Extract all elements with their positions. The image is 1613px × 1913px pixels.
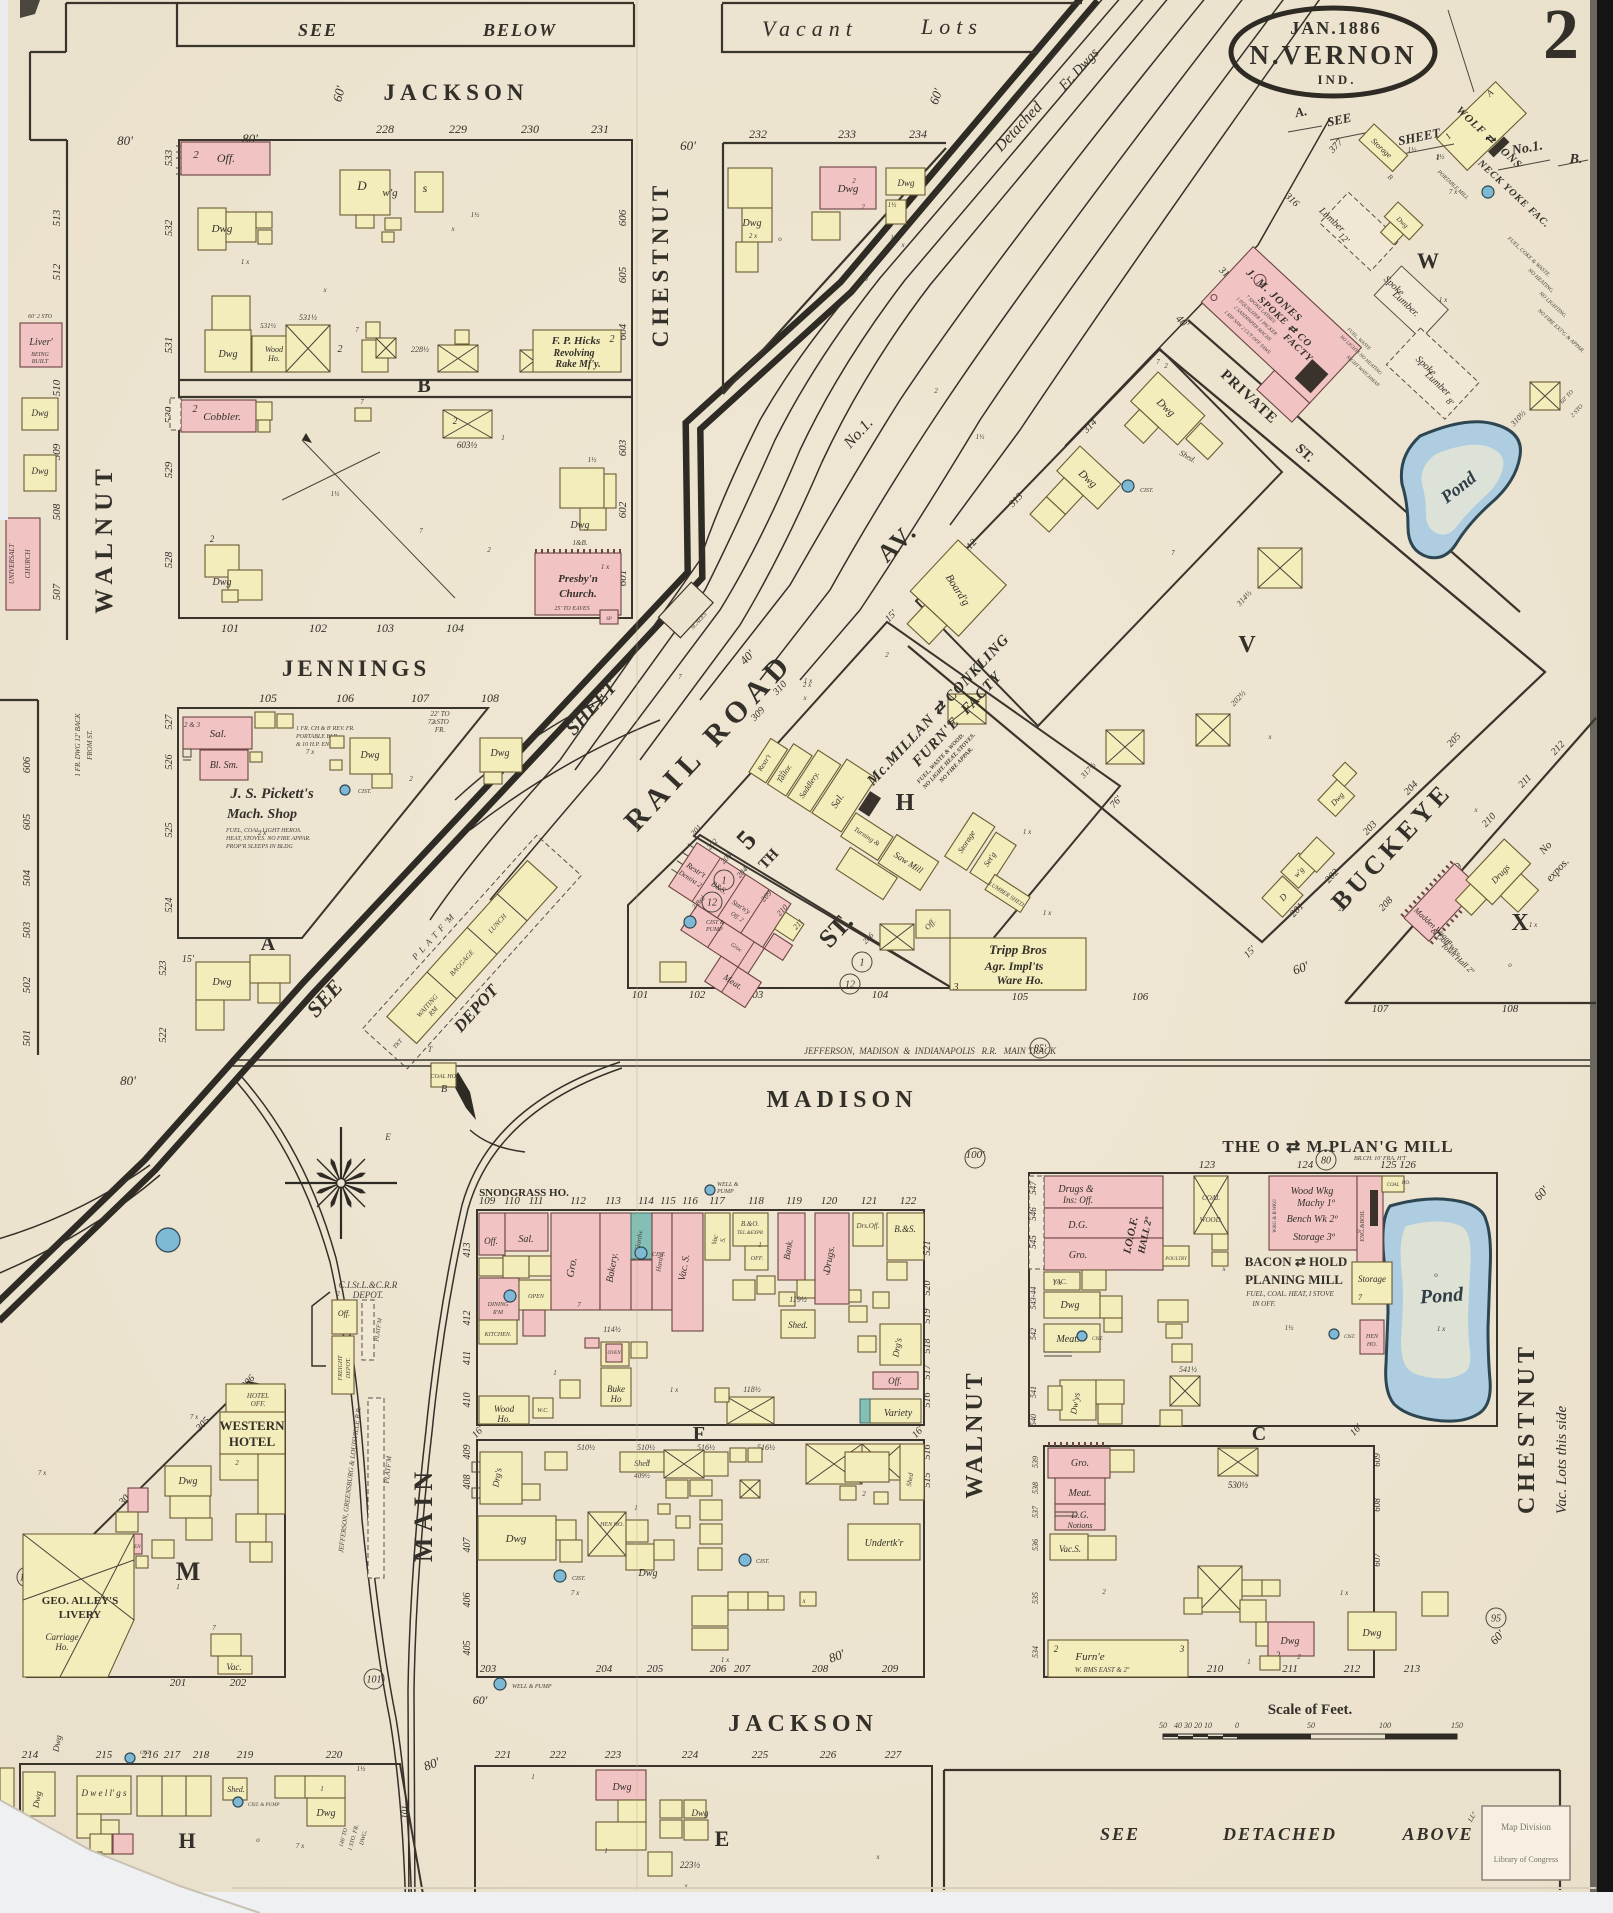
svg-text:o: o	[1508, 961, 1512, 969]
svg-text:536: 536	[1031, 1539, 1040, 1551]
svg-text:1: 1	[531, 1773, 535, 1781]
svg-text:1 x: 1 x	[1439, 296, 1448, 304]
svg-text:109: 109	[479, 1195, 496, 1207]
svg-text:Dwg: Dwg	[690, 1808, 709, 1818]
svg-text:410: 410	[462, 1393, 473, 1408]
svg-text:545: 545	[1028, 1235, 1038, 1249]
svg-text:118½: 118½	[743, 1385, 760, 1394]
svg-text:1: 1	[722, 876, 727, 887]
svg-text:Meat.: Meat.	[1055, 1334, 1079, 1345]
svg-text:OFF.: OFF.	[751, 1256, 763, 1262]
svg-text:FUEL, COAL. HEAT, I STOVE: FUEL, COAL. HEAT, I STOVE	[1245, 1290, 1334, 1298]
svg-text:Buke: Buke	[607, 1384, 625, 1394]
svg-text:1 x: 1 x	[1437, 1325, 1446, 1333]
svg-text:2: 2	[778, 770, 782, 778]
svg-text:WELL & PUMP: WELL & PUMP	[512, 1684, 552, 1690]
svg-text:501: 501	[21, 1030, 33, 1047]
svg-text:525: 525	[164, 823, 175, 838]
svg-text:BЕLOW: BЕLOW	[482, 20, 557, 40]
svg-text:1½: 1½	[471, 211, 481, 219]
svg-text:JEFFERSON, MADISON & INDIAN: JEFFERSON, MADISON & INDIANAPOLIS R.R. M…	[804, 1046, 1057, 1056]
svg-text:80: 80	[1321, 1156, 1331, 1167]
svg-text:Liver': Liver'	[28, 337, 53, 348]
svg-text:232: 232	[749, 127, 767, 141]
svg-text:D w e l l' g s: D w e l l' g s	[81, 1788, 127, 1798]
svg-text:521: 521	[922, 1241, 933, 1256]
svg-text:UNIVERSALT: UNIVERSALT	[8, 543, 16, 584]
svg-text:1 x: 1 x	[1023, 828, 1032, 836]
svg-text:215: 215	[96, 1749, 113, 1761]
svg-text:2 x: 2 x	[258, 829, 267, 837]
svg-text:101: 101	[367, 1675, 382, 1686]
svg-text:CIST.: CIST.	[1092, 1337, 1104, 1342]
svg-text:Off.: Off.	[888, 1376, 902, 1386]
svg-text:606: 606	[617, 209, 629, 226]
svg-text:115: 115	[660, 1195, 676, 1207]
svg-text:121: 121	[861, 1195, 878, 1207]
svg-text:517: 517	[922, 1364, 933, 1380]
svg-text:529: 529	[163, 461, 175, 478]
svg-text:101: 101	[400, 1805, 410, 1819]
svg-text:15': 15'	[182, 954, 195, 965]
svg-text:513: 513	[51, 209, 63, 226]
svg-text:502: 502	[21, 976, 33, 993]
svg-text:Undertk'r: Undertk'r	[865, 1538, 904, 1549]
svg-text:TEL.&EXPR: TEL.&EXPR	[737, 1231, 763, 1236]
svg-text:1: 1	[890, 234, 894, 242]
svg-text:Mach. Shop: Mach. Shop	[226, 807, 297, 822]
svg-text:Library of Congress: Library of Congress	[1494, 1855, 1558, 1864]
svg-text:1 x: 1 x	[1043, 909, 1052, 917]
svg-text:W. RMS EAST & 2º: W. RMS EAST & 2º	[1075, 1666, 1130, 1674]
svg-text:Vac.: Vac.	[226, 1662, 241, 1672]
svg-text:2: 2	[193, 149, 199, 161]
svg-text:w'g: w'g	[382, 187, 398, 199]
svg-text:209: 209	[882, 1663, 899, 1675]
svg-text:W: W	[1417, 248, 1439, 273]
svg-text:PLANING MILL: PLANING MILL	[1245, 1272, 1343, 1287]
svg-text:12: 12	[845, 980, 855, 991]
svg-text:BUILT: BUILT	[32, 359, 49, 365]
svg-text:205: 205	[647, 1663, 664, 1675]
svg-text:2: 2	[1164, 362, 1168, 370]
svg-text:Ware Ho.: Ware Ho.	[996, 973, 1043, 987]
svg-text:W.C.: W.C.	[537, 1408, 548, 1414]
svg-text:F: F	[693, 1423, 705, 1445]
svg-text:Dwg: Dwg	[178, 1476, 198, 1487]
svg-text:224: 224	[682, 1749, 699, 1761]
svg-text:214: 214	[22, 1749, 39, 1761]
svg-text:CIST.: CIST.	[1344, 1335, 1356, 1340]
svg-text:221: 221	[495, 1749, 512, 1761]
svg-text:Drugs &: Drugs &	[1057, 1184, 1094, 1195]
svg-text:105: 105	[259, 691, 277, 705]
svg-text:1 x: 1 x	[721, 1656, 730, 1664]
svg-text:Dwg: Dwg	[30, 408, 49, 418]
svg-text:Map Division: Map Division	[1501, 1822, 1551, 1832]
svg-text:527: 527	[164, 714, 175, 730]
svg-text:218: 218	[193, 1749, 210, 1761]
svg-text:540: 540	[1029, 1414, 1038, 1426]
svg-text:102: 102	[309, 621, 327, 635]
svg-text:40 30 20 10: 40 30 20 10	[1174, 1721, 1212, 1730]
svg-text:1½: 1½	[1408, 146, 1418, 154]
svg-text:HO.: HO.	[1366, 1342, 1377, 1348]
svg-text:Dwg: Dwg	[1280, 1636, 1300, 1647]
svg-text:104: 104	[872, 989, 889, 1001]
svg-text:518: 518	[922, 1339, 933, 1354]
svg-text:412: 412	[462, 1311, 473, 1326]
svg-text:108: 108	[1502, 1003, 1519, 1015]
svg-text:Dwg: Dwg	[212, 977, 232, 988]
svg-text:WALNUT: WALNUT	[91, 462, 118, 614]
svg-text:2: 2	[1338, 905, 1342, 913]
svg-text:602: 602	[617, 501, 629, 518]
svg-text:Drs.Off.: Drs.Off.	[856, 1222, 880, 1230]
svg-text:526: 526	[164, 755, 175, 770]
svg-text:532: 532	[163, 219, 175, 236]
svg-text:Storage: Storage	[1358, 1274, 1386, 1284]
svg-text:207: 207	[734, 1663, 751, 1675]
svg-text:E: E	[715, 1826, 730, 1851]
svg-text:M: M	[176, 1557, 201, 1586]
svg-text:106: 106	[1132, 991, 1149, 1003]
svg-text:Rake Mf'y.: Rake Mf'y.	[554, 359, 600, 370]
svg-text:2: 2	[1543, 0, 1579, 74]
svg-text:Dwg: Dwg	[638, 1568, 658, 1579]
svg-text:7: 7	[678, 673, 682, 681]
svg-text:60': 60'	[680, 138, 696, 153]
svg-text:114½: 114½	[603, 1325, 620, 1334]
svg-text:H: H	[896, 790, 915, 816]
svg-text:535: 535	[1031, 1592, 1040, 1604]
svg-text:2: 2	[862, 1490, 866, 1498]
svg-text:546: 546	[1028, 1207, 1038, 1221]
svg-text:Meat.: Meat.	[1067, 1488, 1091, 1499]
svg-text:Dwg: Dwg	[896, 178, 915, 188]
svg-text:Bench Wk 2º: Bench Wk 2º	[1287, 1214, 1339, 1225]
svg-text:516: 516	[922, 1393, 933, 1408]
svg-text:Storage 3º: Storage 3º	[1293, 1232, 1336, 1243]
svg-text:531½: 531½	[260, 322, 277, 330]
svg-text:Dwg: Dwg	[1362, 1628, 1382, 1639]
svg-text:o: o	[864, 275, 868, 283]
svg-text:2 x: 2 x	[749, 232, 758, 240]
svg-text:537: 537	[1031, 1505, 1040, 1518]
svg-text:7 x: 7 x	[428, 718, 437, 726]
svg-text:504: 504	[21, 869, 33, 886]
svg-text:JACKSON: JACKSON	[728, 1711, 878, 1737]
svg-text:229: 229	[449, 122, 467, 136]
svg-text:WOOD.: WOOD.	[1200, 1216, 1223, 1224]
svg-text:219: 219	[237, 1749, 254, 1761]
svg-text:H: H	[178, 1828, 195, 1853]
svg-text:Dwg: Dwg	[212, 577, 232, 588]
svg-text:2: 2	[336, 1290, 340, 1298]
svg-text:605: 605	[21, 813, 33, 830]
svg-text:POULTRY: POULTRY	[1164, 1257, 1188, 1262]
svg-text:B.&S.: B.&S.	[894, 1224, 916, 1234]
svg-text:230: 230	[521, 122, 539, 136]
svg-text:CHURCH: CHURCH	[24, 549, 32, 579]
svg-text:2: 2	[193, 404, 198, 415]
svg-text:150: 150	[1451, 1721, 1463, 1730]
svg-text:X: X	[1511, 910, 1529, 936]
svg-text:1½: 1½	[1436, 153, 1446, 161]
svg-text:114: 114	[638, 1195, 654, 1207]
svg-text:202: 202	[230, 1677, 247, 1689]
svg-text:Revolving: Revolving	[552, 348, 594, 359]
svg-text:Dwg: Dwg	[1060, 1300, 1080, 1311]
svg-text:Dwg: Dwg	[570, 520, 590, 531]
svg-text:538: 538	[1031, 1482, 1040, 1494]
svg-text:o: o	[1434, 1271, 1438, 1279]
svg-text:226: 226	[820, 1749, 837, 1761]
svg-text:Dwg: Dwg	[211, 223, 233, 235]
svg-text:HO.: HO.	[1401, 1181, 1410, 1186]
svg-text:406: 406	[462, 1593, 473, 1608]
svg-text:DЕTACHЕD: DЕTACHЕD	[1222, 1824, 1337, 1844]
svg-text:Wood: Wood	[494, 1404, 515, 1414]
svg-text:2: 2	[1102, 1588, 1106, 1596]
svg-text:Dwg: Dwg	[360, 750, 380, 761]
svg-text:Carriage: Carriage	[45, 1632, 78, 1642]
svg-text:MAIN: MAIN	[409, 1466, 438, 1562]
svg-text:Off.: Off.	[338, 1309, 350, 1318]
svg-text:1: 1	[176, 1583, 180, 1591]
svg-text:1½: 1½	[588, 456, 598, 464]
svg-text:BR.CH. 10' FRA. H'T: BR.CH. 10' FRA. H'T	[1354, 1156, 1407, 1162]
svg-text:Dwg: Dwg	[490, 748, 510, 759]
svg-text:228½: 228½	[411, 345, 429, 354]
svg-text:Ins: Off.: Ins: Off.	[1062, 1195, 1093, 1205]
svg-text:528: 528	[163, 551, 175, 568]
svg-text:THЕ O ⇄ M.PLAN'G MILL: THЕ O ⇄ M.PLAN'G MILL	[1222, 1137, 1453, 1156]
svg-text:OFF.: OFF.	[251, 1400, 266, 1408]
svg-text:234: 234	[909, 127, 927, 141]
svg-text:405: 405	[462, 1641, 473, 1656]
svg-text:123: 123	[1199, 1159, 1216, 1171]
svg-text:530½: 530½	[1228, 1480, 1249, 1490]
svg-text:o: o	[256, 1836, 260, 1844]
svg-text:7: 7	[1171, 549, 1175, 557]
svg-text:606: 606	[21, 756, 33, 773]
svg-text:CIST &: CIST &	[706, 920, 725, 926]
svg-text:107: 107	[1372, 1003, 1389, 1015]
svg-text:541½: 541½	[1179, 1365, 1197, 1374]
svg-text:J. S. Pickett's: J. S. Pickett's	[229, 786, 313, 802]
svg-text:HOTEL: HOTEL	[246, 1392, 269, 1400]
svg-text:B.&O.: B.&O.	[741, 1220, 760, 1228]
svg-text:7: 7	[360, 398, 364, 406]
svg-text:117: 117	[709, 1195, 725, 1207]
svg-text:Ho.: Ho.	[496, 1414, 510, 1424]
svg-text:Variety: Variety	[884, 1408, 913, 1419]
svg-text:Dwg: Dwg	[505, 1533, 527, 1545]
svg-text:JAN.1886: JAN.1886	[1290, 18, 1382, 38]
svg-text:7 x: 7 x	[571, 1589, 580, 1597]
svg-text:D: D	[356, 178, 367, 193]
svg-text:206: 206	[710, 1663, 727, 1675]
svg-text:Agr. Impl'ts: Agr. Impl'ts	[984, 959, 1044, 973]
svg-text:100: 100	[1379, 1721, 1391, 1730]
svg-text:Notions: Notions	[1067, 1521, 1093, 1530]
svg-text:7: 7	[419, 527, 423, 535]
svg-text:101: 101	[221, 621, 239, 635]
svg-text:1 x: 1 x	[601, 563, 610, 571]
svg-text:JACKSON: JACKSON	[384, 80, 529, 105]
svg-text:1 FR. CH & 8' REV. FR.: 1 FR. CH & 8' REV. FR.	[296, 726, 355, 732]
svg-text:225: 225	[752, 1749, 769, 1761]
svg-text:Shed.: Shed.	[788, 1320, 808, 1330]
svg-text:1½: 1½	[331, 490, 341, 498]
svg-text:507: 507	[51, 583, 63, 600]
svg-text:227: 227	[885, 1749, 902, 1761]
svg-text:B: B	[441, 1084, 447, 1095]
svg-text:118: 118	[748, 1195, 764, 1207]
svg-text:Tripp Bros: Tripp Bros	[989, 942, 1047, 957]
svg-text:508: 508	[51, 503, 63, 520]
svg-text:85': 85'	[1034, 1044, 1047, 1055]
svg-text:V: V	[1238, 632, 1256, 658]
svg-text:2: 2	[826, 1269, 830, 1277]
svg-text:1½: 1½	[976, 433, 986, 441]
svg-text:OVEN: OVEN	[607, 1351, 621, 1356]
svg-text:60' 2 STO: 60' 2 STO	[28, 314, 53, 320]
svg-text:7 x: 7 x	[296, 1842, 305, 1850]
svg-text:201: 201	[170, 1677, 187, 1689]
svg-text:SP: SP	[606, 617, 612, 622]
svg-text:541: 541	[1029, 1386, 1038, 1398]
svg-text:FR.: FR.	[434, 726, 446, 734]
svg-text:512: 512	[51, 263, 63, 280]
svg-text:CIST.: CIST.	[756, 1559, 769, 1565]
svg-text:50: 50	[1159, 1721, 1167, 1730]
svg-text:CIST.: CIST.	[1140, 488, 1153, 494]
svg-text:Presby'n: Presby'n	[558, 573, 598, 585]
svg-text:119: 119	[786, 1195, 802, 1207]
svg-text:539: 539	[1031, 1456, 1040, 1468]
svg-text:1 x: 1 x	[1340, 1589, 1349, 1597]
svg-text:DEPOT.: DEPOT.	[346, 1358, 352, 1379]
svg-text:80': 80'	[120, 1073, 136, 1088]
svg-text:217: 217	[164, 1749, 181, 1761]
svg-text:413: 413	[462, 1243, 473, 1258]
svg-text:510: 510	[51, 379, 63, 396]
svg-text:D.G.: D.G.	[1067, 1220, 1087, 1231]
svg-text:22' TO: 22' TO	[430, 710, 449, 718]
svg-text:547: 547	[1028, 1181, 1038, 1195]
svg-text:408: 408	[462, 1475, 473, 1490]
svg-text:2: 2	[487, 546, 491, 554]
svg-text:Scale of Feet.: Scale of Feet.	[1268, 1702, 1353, 1718]
svg-text:116: 116	[682, 1195, 698, 1207]
svg-text:122: 122	[900, 1195, 917, 1207]
svg-text:PROP'R SLEEPS IN BLDG: PROP'R SLEEPS IN BLDG	[225, 844, 293, 850]
svg-text:1: 1	[860, 958, 865, 969]
svg-text:2: 2	[861, 203, 865, 211]
svg-text:Machy 1º: Machy 1º	[1296, 1198, 1336, 1209]
svg-text:210: 210	[1207, 1663, 1224, 1675]
svg-text:CIST.: CIST.	[652, 1252, 665, 1258]
svg-text:7: 7	[1156, 358, 1160, 366]
svg-text:IN OFF.: IN OFF.	[1251, 1300, 1275, 1308]
svg-text:2: 2	[210, 534, 215, 544]
svg-text:2: 2	[934, 387, 938, 395]
svg-text:Ho: Ho	[610, 1394, 622, 1404]
svg-text:7 x: 7 x	[38, 1469, 47, 1477]
svg-text:111: 111	[529, 1195, 544, 1207]
svg-text:212: 212	[1344, 1663, 1361, 1675]
svg-text:7 x: 7 x	[306, 748, 315, 756]
svg-text:KITCHEN.: KITCHEN.	[484, 1332, 512, 1338]
svg-text:1 x: 1 x	[241, 258, 250, 266]
svg-text:CIST.: CIST.	[572, 1576, 585, 1582]
svg-text:108: 108	[481, 691, 499, 705]
svg-text:220: 220	[326, 1749, 343, 1761]
svg-text:223½: 223½	[680, 1860, 701, 1870]
svg-text:203: 203	[480, 1663, 497, 1675]
svg-text:124: 124	[1297, 1159, 1314, 1171]
svg-text:407: 407	[462, 1537, 473, 1553]
svg-text:3: 3	[1179, 1644, 1185, 1654]
svg-text:222: 222	[550, 1749, 567, 1761]
svg-text:HEN HO.: HEN HO.	[599, 1522, 624, 1528]
svg-text:1&B.: 1&B.	[573, 539, 588, 547]
svg-text:BEING: BEING	[31, 352, 49, 358]
svg-text:Lots: Lots	[920, 14, 983, 39]
svg-text:50: 50	[1307, 1721, 1315, 1730]
svg-text:603½: 603½	[457, 440, 478, 450]
svg-text:Dwg: Dwg	[218, 349, 238, 360]
svg-text:2: 2	[1054, 1644, 1059, 1654]
svg-text:Shed.: Shed.	[227, 1785, 245, 1794]
svg-text:510½: 510½	[577, 1443, 595, 1452]
svg-text:25' TO EAVES: 25' TO EAVES	[554, 606, 589, 612]
svg-text:106: 106	[336, 691, 354, 705]
svg-text:Church.: Church.	[559, 588, 597, 600]
svg-text:2: 2	[453, 416, 458, 426]
svg-text:PUMP: PUMP	[705, 927, 723, 933]
svg-text:BACON ⇄ HOLD: BACON ⇄ HOLD	[1245, 1254, 1348, 1269]
svg-text:C: C	[1252, 1423, 1266, 1445]
svg-text:543-44: 543-44	[1029, 1287, 1038, 1310]
svg-text:223: 223	[605, 1749, 622, 1761]
svg-text:605: 605	[617, 266, 629, 283]
svg-text:o: o	[1356, 1227, 1360, 1235]
svg-text:Vac.S.: Vac.S.	[1059, 1544, 1081, 1554]
svg-text:12: 12	[707, 898, 717, 909]
svg-text:MADISON: MADISON	[766, 1087, 917, 1113]
svg-text:HEAT, STOVES. NO FIRE APPAR.: HEAT, STOVES. NO FIRE APPAR.	[225, 836, 311, 842]
svg-text:GЕO. ALLЕY'S: GЕO. ALLЕY'S	[42, 1595, 118, 1607]
svg-text:409: 409	[462, 1445, 473, 1460]
svg-text:SЕЕ: SЕЕ	[298, 20, 338, 40]
svg-text:CIST.: CIST.	[140, 1751, 152, 1756]
svg-text:110: 110	[504, 1195, 520, 1207]
svg-text:& 10 H.P. ENG.: & 10 H.P. ENG.	[296, 742, 335, 748]
svg-text:1: 1	[553, 1369, 557, 1377]
svg-text:JENNINGS: JENNINGS	[282, 656, 430, 681]
svg-text:Gro.: Gro.	[1071, 1458, 1089, 1469]
svg-text:Off.: Off.	[484, 1236, 498, 1246]
svg-text:228: 228	[376, 122, 394, 136]
svg-text:LIVЕRY: LIVЕRY	[59, 1609, 101, 1621]
svg-text:1: 1	[320, 1785, 324, 1793]
svg-text:Pond: Pond	[1418, 1283, 1465, 1308]
svg-text:Dwg: Dwg	[30, 466, 49, 476]
svg-text:1: 1	[758, 1241, 762, 1249]
